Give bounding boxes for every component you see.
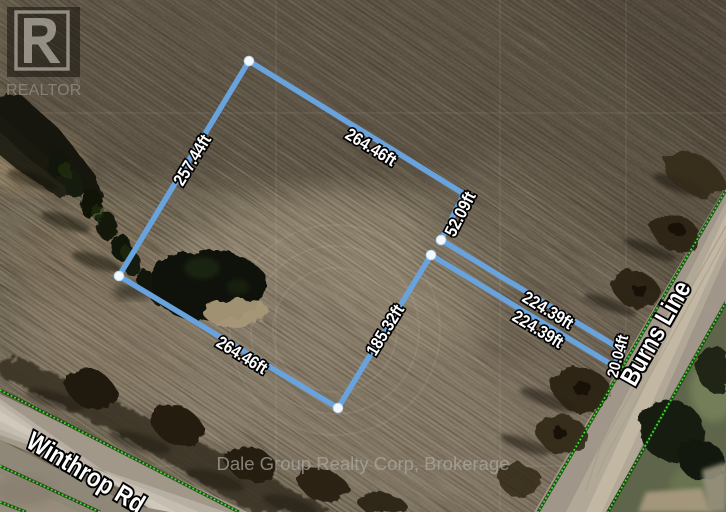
svg-text:Dale Group Realty Corp, Broker: Dale Group Realty Corp, Brokerage: [216, 453, 509, 474]
svg-text:®: ®: [74, 77, 80, 86]
svg-text:REALTOR: REALTOR: [6, 82, 82, 99]
